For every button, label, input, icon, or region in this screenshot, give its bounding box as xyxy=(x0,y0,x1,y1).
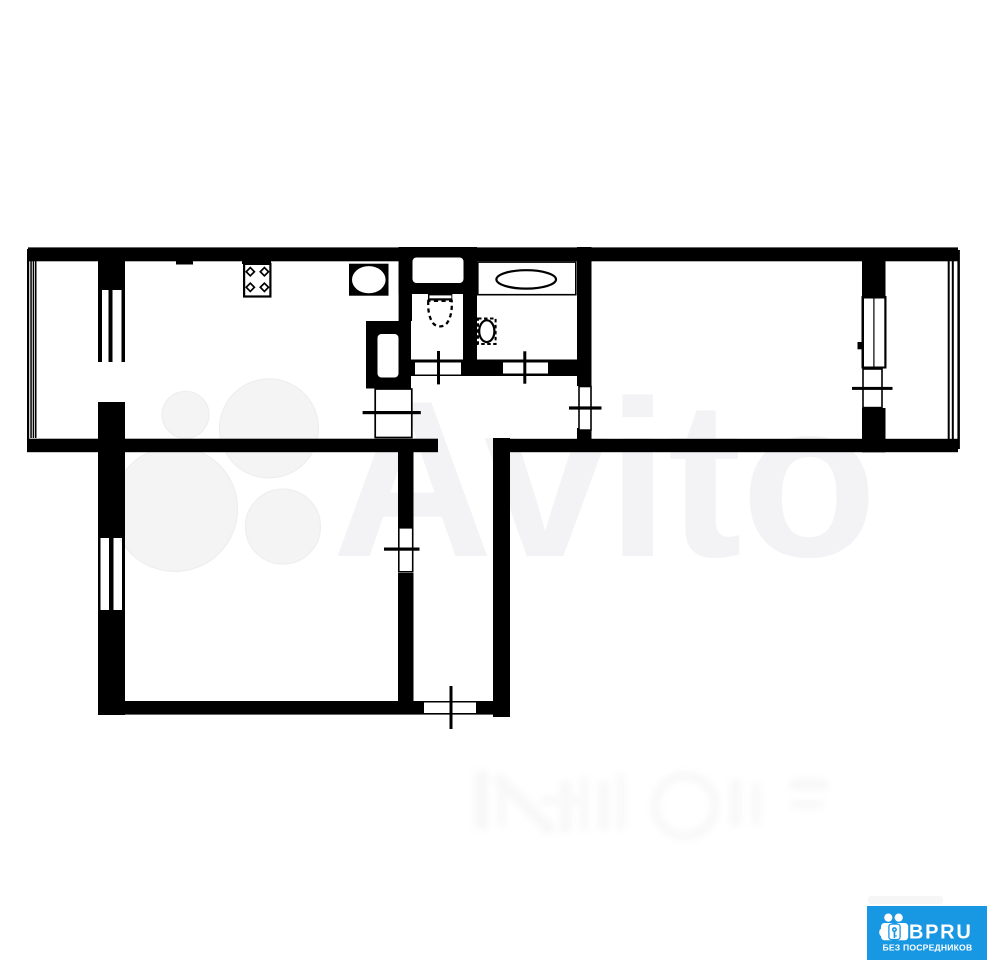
svg-text:BPRU: BPRU xyxy=(909,922,972,944)
svg-text:БЕЗ ПОСРЕДНИКОВ: БЕЗ ПОСРЕДНИКОВ xyxy=(883,943,973,953)
svg-text:Avito: Avito xyxy=(332,355,876,604)
